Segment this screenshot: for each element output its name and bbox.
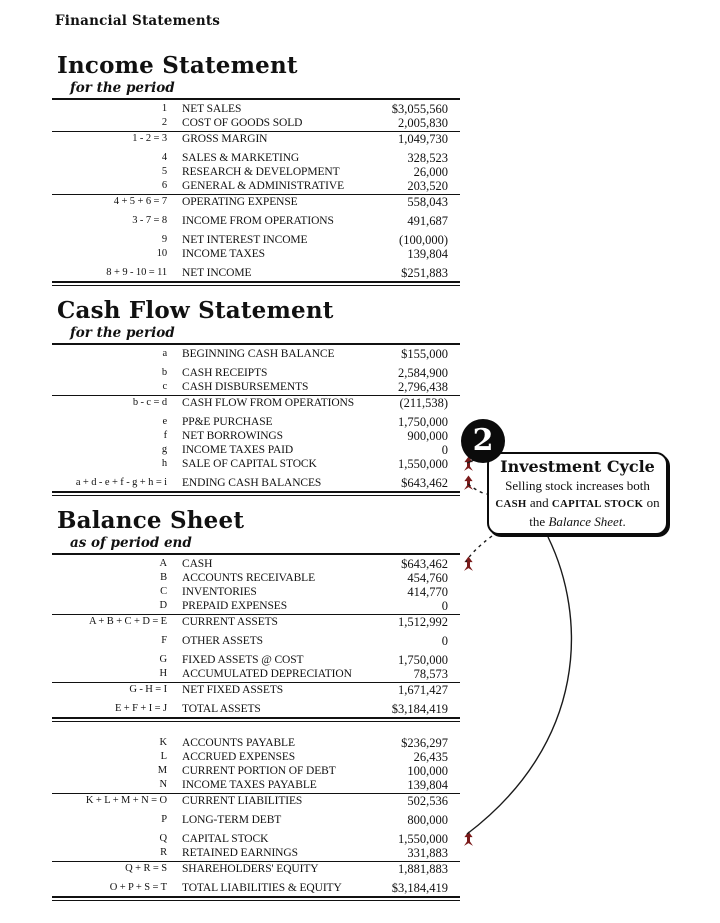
callout-body-text: Selling stock increases both CASH and CA… (495, 477, 660, 530)
table-row: HACCUMULATED DEPRECIATION78,573 (52, 667, 460, 681)
row-value: $3,055,560 (353, 102, 460, 116)
connector-capital-stock-curve (467, 537, 571, 834)
row-formula: B (52, 571, 167, 585)
table-row: 6GENERAL & ADMINISTRATIVE203,520 (52, 179, 460, 193)
table-row: NINCOME TAXES PAYABLE139,804 (52, 778, 460, 792)
row-label: RESEARCH & DEVELOPMENT (182, 165, 353, 179)
row-formula: b (52, 366, 167, 380)
row-label: NET SALES (182, 102, 353, 116)
row-label: INCOME TAXES PAYABLE (182, 778, 353, 792)
row-formula: f (52, 429, 167, 443)
row-value: 26,435 (353, 750, 460, 764)
row-label: LONG-TERM DEBT (182, 813, 353, 827)
row-formula: F (52, 634, 167, 648)
callout-body-segment: . (622, 514, 625, 529)
table-row: b - c = dCASH FLOW FROM OPERATIONS(211,5… (52, 396, 460, 410)
table-row: QCAPITAL STOCK1,550,000 (52, 832, 460, 846)
row-label: ACCOUNTS RECEIVABLE (182, 571, 353, 585)
row-value: 558,043 (353, 195, 460, 209)
row-value: 1,512,992 (353, 615, 460, 629)
cash-flow-statement-section: Cash Flow Statement for the period aBEGI… (0, 297, 480, 498)
row-value: 2,796,438 (353, 380, 460, 394)
row-formula: Q (52, 832, 167, 846)
row-label: NET FIXED ASSETS (182, 683, 353, 697)
table-row: RRETAINED EARNINGS331,883 (52, 846, 460, 860)
row-label: FIXED ASSETS @ COST (182, 653, 353, 667)
table-row: O + P + S = TTOTAL LIABILITIES & EQUITY$… (52, 881, 460, 895)
table-row: DPREPAID EXPENSES0 (52, 599, 460, 613)
row-label: TOTAL LIABILITIES & EQUITY (182, 881, 353, 895)
row-label: NET BORROWINGS (182, 429, 353, 443)
row-label: CURRENT LIABILITIES (182, 794, 353, 808)
table-row: PLONG-TERM DEBT800,000 (52, 813, 460, 827)
income-statement-section: Income Statement for the period 1NET SAL… (0, 52, 480, 288)
table-row: 2COST OF GOODS SOLD2,005,830 (52, 116, 460, 130)
row-formula: D (52, 599, 167, 613)
row-value: 1,671,427 (353, 683, 460, 697)
row-formula: 1 (52, 102, 167, 116)
table-row: GFIXED ASSETS @ COST1,750,000 (52, 653, 460, 667)
table-row: 4 + 5 + 6 = 7OPERATING EXPENSE558,043 (52, 195, 460, 209)
row-label: CASH FLOW FROM OPERATIONS (182, 396, 353, 410)
table-row: E + F + I = JTOTAL ASSETS$3,184,419 (52, 702, 460, 716)
row-formula: e (52, 415, 167, 429)
table-row: 9NET INTEREST INCOME(100,000) (52, 233, 460, 247)
step-2-badge: 2 (461, 419, 505, 463)
row-value: 414,770 (353, 585, 460, 599)
table-row: CINVENTORIES414,770 (52, 585, 460, 599)
table-row: 3 - 7 = 8INCOME FROM OPERATIONS491,687 (52, 214, 460, 228)
table-row: gINCOME TAXES PAID0 (52, 443, 460, 457)
row-value: 100,000 (353, 764, 460, 778)
row-formula: L (52, 750, 167, 764)
row-formula: G (52, 653, 167, 667)
table-row: A + B + C + D = ECURRENT ASSETS1,512,992 (52, 615, 460, 629)
row-formula: b - c = d (52, 396, 167, 410)
callout-body-segment: Balance Sheet (548, 514, 622, 529)
row-formula: 2 (52, 116, 167, 130)
row-value: $3,184,419 (353, 881, 460, 895)
row-label: ACCUMULATED DEPRECIATION (182, 667, 353, 681)
row-formula: g (52, 443, 167, 457)
table-row: LACCRUED EXPENSES26,435 (52, 750, 460, 764)
table-row: 1NET SALES$3,055,560 (52, 102, 460, 116)
row-value: 800,000 (353, 813, 460, 827)
row-label: CASH DISBURSEMENTS (182, 380, 353, 394)
row-value: 0 (353, 634, 460, 648)
row-label: CURRENT PORTION OF DEBT (182, 764, 353, 778)
row-formula: a (52, 347, 167, 361)
row-label: INCOME TAXES PAID (182, 443, 353, 457)
table-row: aBEGINNING CASH BALANCE$155,000 (52, 347, 460, 361)
row-label: ACCRUED EXPENSES (182, 750, 353, 764)
row-label: TOTAL ASSETS (182, 702, 353, 716)
balance-sheet-table: ACASH$643,462BACCOUNTS RECEIVABLE454,760… (52, 553, 460, 901)
row-label: INCOME TAXES (182, 247, 353, 261)
row-formula: 1 - 2 = 3 (52, 132, 167, 146)
table-row: cCASH DISBURSEMENTS2,796,438 (52, 380, 460, 394)
row-formula: K (52, 736, 167, 750)
row-value: 491,687 (353, 214, 460, 228)
callout-body-segment: Selling stock increases both (505, 478, 650, 493)
row-formula: A + B + C + D = E (52, 615, 167, 629)
row-label: OTHER ASSETS (182, 634, 353, 648)
row-label: RETAINED EARNINGS (182, 846, 353, 860)
double-rule (52, 896, 460, 901)
row-value: 1,750,000 (353, 653, 460, 667)
row-label: GROSS MARGIN (182, 132, 353, 146)
row-value: 1,049,730 (353, 132, 460, 146)
row-value: 1,881,883 (353, 862, 460, 876)
row-label: CASH (182, 557, 353, 571)
table-row: G - H = INET FIXED ASSETS1,671,427 (52, 683, 460, 697)
row-formula: h (52, 457, 167, 471)
double-rule (52, 717, 460, 722)
row-label: SALE OF CAPITAL STOCK (182, 457, 353, 471)
table-row: 8 + 9 - 10 = 11NET INCOME$251,883 (52, 266, 460, 280)
row-formula: R (52, 846, 167, 860)
table-row: KACCOUNTS PAYABLE$236,297 (52, 736, 460, 750)
row-label: SHAREHOLDERS' EQUITY (182, 862, 353, 876)
row-value: 26,000 (353, 165, 460, 179)
row-label: GENERAL & ADMINISTRATIVE (182, 179, 353, 193)
row-formula: a + d - e + f - g + h = i (52, 476, 167, 490)
row-label: NET INCOME (182, 266, 353, 280)
row-formula: 9 (52, 233, 167, 247)
row-value: 900,000 (353, 429, 460, 443)
row-formula: 6 (52, 179, 167, 193)
callout-title: Investment Cycle (495, 457, 660, 477)
table-row: 1 - 2 = 3GROSS MARGIN1,049,730 (52, 132, 460, 146)
investment-cycle-callout: Investment Cycle Selling stock increases… (487, 452, 668, 535)
row-value: (211,538) (353, 396, 460, 410)
section-title: Income Statement (57, 52, 480, 80)
table-row: 5RESEARCH & DEVELOPMENT26,000 (52, 165, 460, 179)
row-value: 0 (353, 443, 460, 457)
row-label: NET INTEREST INCOME (182, 233, 353, 247)
row-value: 203,520 (353, 179, 460, 193)
row-label: PP&E PURCHASE (182, 415, 353, 429)
table-row: ePP&E PURCHASE1,750,000 (52, 415, 460, 429)
section-subtitle: for the period (70, 325, 480, 343)
row-label: INVENTORIES (182, 585, 353, 599)
row-formula: O + P + S = T (52, 881, 167, 895)
row-label: INCOME FROM OPERATIONS (182, 214, 353, 228)
row-value: 502,536 (353, 794, 460, 808)
row-label: SALES & MARKETING (182, 151, 353, 165)
row-formula: H (52, 667, 167, 681)
row-value: 454,760 (353, 571, 460, 585)
row-value: 2,584,900 (353, 366, 460, 380)
increase-arrow-icon (463, 832, 474, 847)
row-formula: P (52, 813, 167, 827)
table-row: ACASH$643,462 (52, 557, 460, 571)
row-label: ENDING CASH BALANCES (182, 476, 353, 490)
callout-body-segment: CASH (495, 498, 526, 510)
table-row: K + L + M + N = OCURRENT LIABILITIES502,… (52, 794, 460, 808)
document-title: Financial Statements (55, 13, 220, 29)
row-value: 139,804 (353, 778, 460, 792)
table-row: FOTHER ASSETS0 (52, 634, 460, 648)
row-value: 1,750,000 (353, 415, 460, 429)
row-value: $643,462 (353, 557, 460, 571)
row-formula: 4 (52, 151, 167, 165)
row-value: $643,462 (353, 476, 460, 490)
balance-sheet-section: Balance Sheet as of period end ACASH$643… (0, 507, 480, 903)
row-value: 1,550,000 (353, 457, 460, 471)
row-label: OPERATING EXPENSE (182, 195, 353, 209)
row-formula: Q + R = S (52, 862, 167, 876)
row-label: PREPAID EXPENSES (182, 599, 353, 613)
row-formula: 4 + 5 + 6 = 7 (52, 195, 167, 209)
row-label: BEGINNING CASH BALANCE (182, 347, 353, 361)
row-label: CASH RECEIPTS (182, 366, 353, 380)
table-row: 10INCOME TAXES139,804 (52, 247, 460, 261)
table-row: Q + R = SSHAREHOLDERS' EQUITY1,881,883 (52, 862, 460, 876)
table-row: hSALE OF CAPITAL STOCK1,550,000 (52, 457, 460, 471)
row-label: CURRENT ASSETS (182, 615, 353, 629)
table-row: fNET BORROWINGS900,000 (52, 429, 460, 443)
row-formula: 5 (52, 165, 167, 179)
row-formula: 3 - 7 = 8 (52, 214, 167, 228)
section-title: Cash Flow Statement (57, 297, 480, 325)
row-formula: N (52, 778, 167, 792)
row-formula: C (52, 585, 167, 599)
callout-body-segment: and (527, 495, 552, 510)
row-formula: A (52, 557, 167, 571)
row-value: $251,883 (353, 266, 460, 280)
row-value: $236,297 (353, 736, 460, 750)
row-value: $3,184,419 (353, 702, 460, 716)
table-row: BACCOUNTS RECEIVABLE454,760 (52, 571, 460, 585)
increase-arrow-icon (463, 557, 474, 572)
section-subtitle: as of period end (70, 535, 480, 553)
row-value: (100,000) (353, 233, 460, 247)
row-formula: M (52, 764, 167, 778)
double-rule (52, 491, 460, 496)
table-row: MCURRENT PORTION OF DEBT100,000 (52, 764, 460, 778)
row-label: ACCOUNTS PAYABLE (182, 736, 353, 750)
row-value: $155,000 (353, 347, 460, 361)
row-formula: 8 + 9 - 10 = 11 (52, 266, 167, 280)
financial-statements-page: Financial Statements Income Statement fo… (0, 0, 720, 923)
callout-body-segment: CAPITAL STOCK (552, 498, 643, 510)
increase-arrow-icon (463, 476, 474, 491)
row-value: 78,573 (353, 667, 460, 681)
double-rule (52, 281, 460, 286)
row-label: COST OF GOODS SOLD (182, 116, 353, 130)
row-value: 331,883 (353, 846, 460, 860)
row-value: 2,005,830 (353, 116, 460, 130)
section-title: Balance Sheet (57, 507, 480, 535)
section-subtitle: for the period (70, 80, 480, 98)
row-label: CAPITAL STOCK (182, 832, 353, 846)
row-value: 328,523 (353, 151, 460, 165)
row-formula: K + L + M + N = O (52, 794, 167, 808)
row-value: 139,804 (353, 247, 460, 261)
table-row: a + d - e + f - g + h = iENDING CASH BAL… (52, 476, 460, 490)
income-statement-table: 1NET SALES$3,055,5602COST OF GOODS SOLD2… (52, 98, 460, 286)
row-formula: 10 (52, 247, 167, 261)
row-value: 1,550,000 (353, 832, 460, 846)
cash-flow-statement-table: aBEGINNING CASH BALANCE$155,000bCASH REC… (52, 343, 460, 496)
row-formula: G - H = I (52, 683, 167, 697)
row-spacer (52, 724, 460, 736)
row-formula: E + F + I = J (52, 702, 167, 716)
table-row: bCASH RECEIPTS2,584,900 (52, 366, 460, 380)
table-row: 4SALES & MARKETING328,523 (52, 151, 460, 165)
row-formula: c (52, 380, 167, 394)
row-value: 0 (353, 599, 460, 613)
